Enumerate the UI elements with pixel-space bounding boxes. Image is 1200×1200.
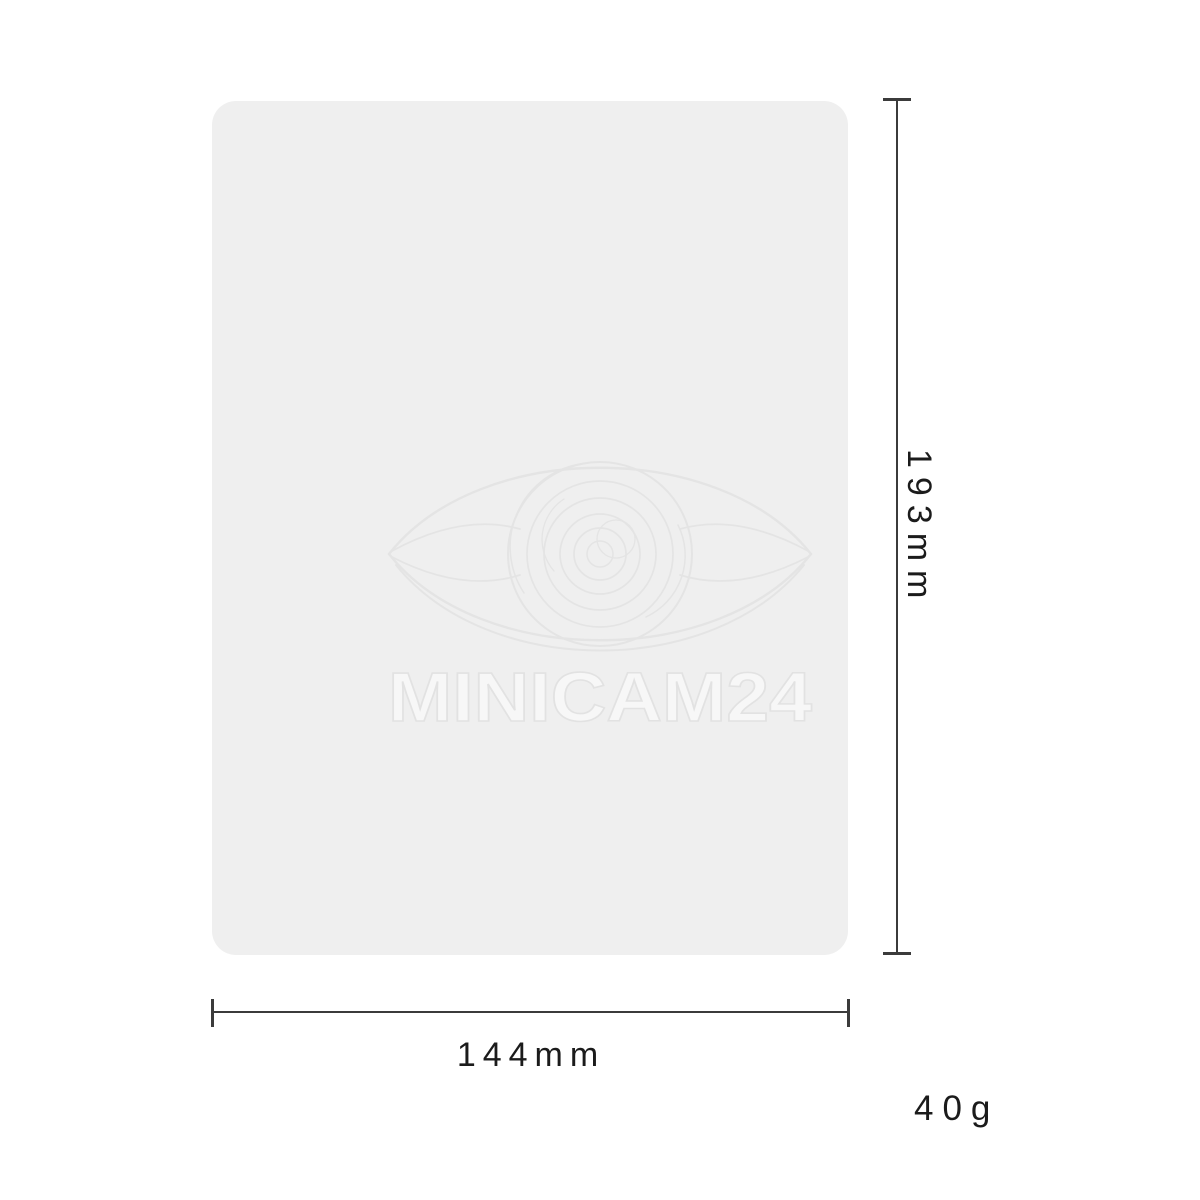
width-dimension-cap-right: [847, 999, 850, 1027]
width-dimension-line: [212, 1011, 850, 1013]
watermark-brand-text: MINICAM24: [388, 658, 812, 736]
height-dimension-line: [896, 99, 898, 955]
width-dimension-cap-left: [211, 999, 214, 1027]
product-panel: MINICAM24: [212, 101, 848, 955]
width-dimension-label: 144mm: [212, 1036, 850, 1075]
product-dimension-diagram: MINICAM24 193mm 144mm 40g: [0, 0, 1200, 1200]
eye-watermark-icon: [389, 462, 811, 651]
brand-watermark: MINICAM24: [212, 101, 848, 955]
height-dimension-label: 193mm: [899, 101, 938, 955]
weight-label: 40g: [914, 1089, 999, 1129]
